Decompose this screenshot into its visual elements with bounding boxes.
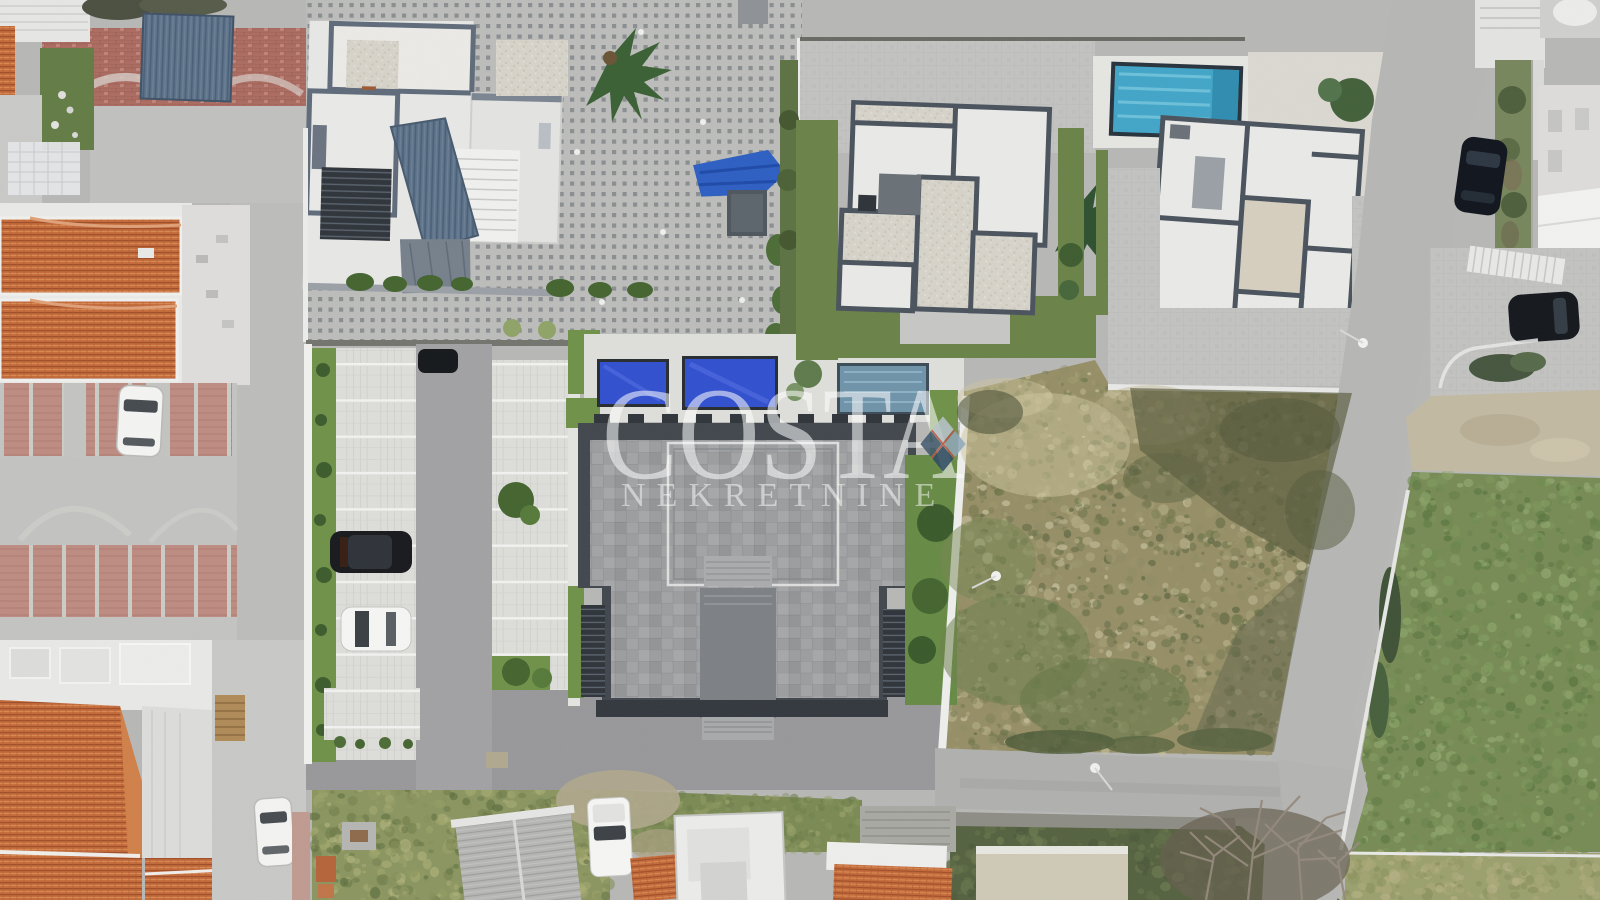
svg-text:NEKRETNINE: NEKRETNINE: [621, 477, 946, 514]
